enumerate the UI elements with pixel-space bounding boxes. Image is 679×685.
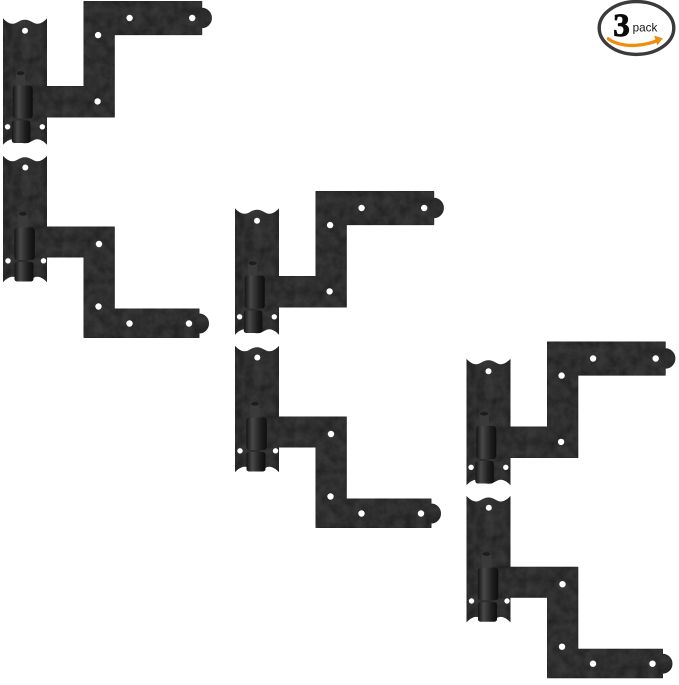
svg-text:3: 3 (613, 8, 630, 44)
svg-text:pack: pack (633, 21, 658, 34)
